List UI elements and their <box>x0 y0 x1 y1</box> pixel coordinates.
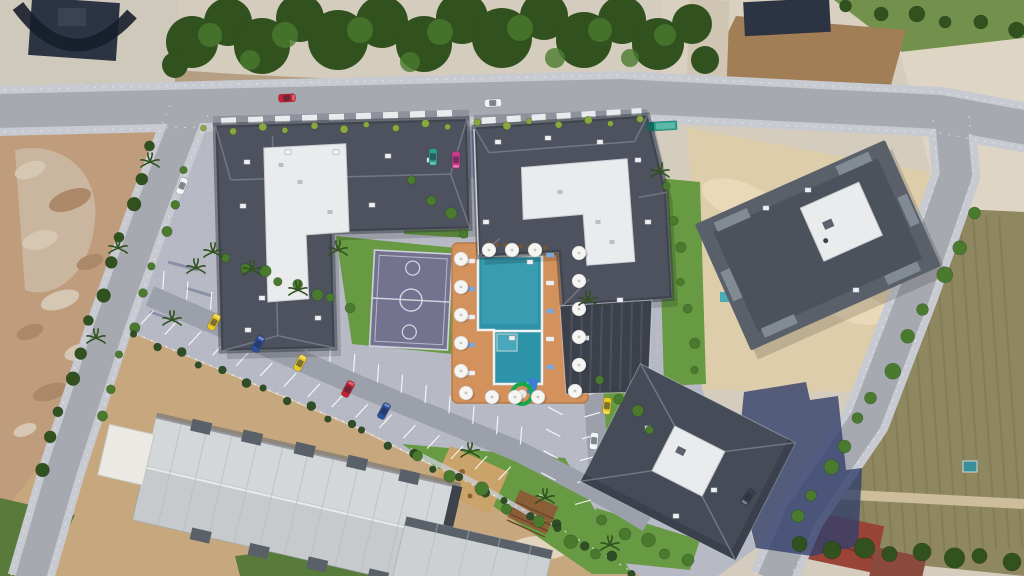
tree <box>501 497 508 504</box>
tree <box>66 372 80 386</box>
tree <box>363 122 369 128</box>
car <box>278 94 295 103</box>
tree <box>953 241 967 255</box>
play-equipment <box>468 494 473 499</box>
tree <box>969 207 981 219</box>
tree <box>348 420 356 428</box>
tree <box>106 385 115 394</box>
tree <box>1009 22 1024 38</box>
rooftop-unit <box>527 260 533 265</box>
tree <box>455 473 463 481</box>
tree <box>677 278 685 286</box>
tree <box>628 570 636 576</box>
tree <box>645 426 654 435</box>
tree <box>501 504 511 514</box>
tree <box>874 7 888 21</box>
rooftop-unit <box>245 328 251 333</box>
tree <box>554 524 562 532</box>
tree <box>422 120 430 128</box>
tree <box>691 366 699 374</box>
tree <box>840 0 852 12</box>
tree <box>345 303 355 313</box>
tree <box>307 401 316 410</box>
tree <box>283 397 291 405</box>
tree <box>36 463 50 477</box>
rooftop-unit <box>483 220 489 225</box>
tree <box>555 121 562 128</box>
tree <box>595 376 604 385</box>
car <box>429 149 437 166</box>
cafe-table <box>543 246 547 250</box>
tree <box>909 6 925 22</box>
tree <box>690 338 700 348</box>
tree <box>180 166 188 174</box>
rooftop-unit <box>259 296 265 301</box>
roof-mark <box>279 163 284 167</box>
tree <box>792 536 807 551</box>
tree <box>115 351 123 359</box>
pool-ripple <box>482 260 538 324</box>
tree <box>614 394 624 404</box>
rooftop-unit <box>597 140 603 145</box>
tree <box>885 363 901 379</box>
tree <box>584 116 592 124</box>
tree <box>663 182 671 190</box>
tree <box>325 416 332 423</box>
tree <box>619 528 631 540</box>
tree <box>340 125 348 133</box>
tree <box>130 331 137 338</box>
tree <box>444 470 456 482</box>
tree <box>972 548 987 563</box>
rooftop-unit <box>673 514 679 519</box>
tree <box>683 304 692 313</box>
tree <box>230 128 237 135</box>
tree <box>154 343 162 351</box>
tree <box>445 208 457 220</box>
tree <box>282 127 288 133</box>
tree <box>503 122 511 130</box>
tree <box>823 541 841 559</box>
tree <box>412 451 422 461</box>
tree <box>474 119 481 126</box>
tree <box>53 407 63 417</box>
tree <box>311 122 318 129</box>
tree <box>901 329 915 343</box>
tree <box>913 543 931 561</box>
tree <box>136 173 148 185</box>
truck <box>647 121 677 132</box>
tree <box>429 466 436 473</box>
rooftop-unit <box>495 140 501 145</box>
tree <box>607 121 613 127</box>
tree <box>392 125 399 132</box>
car <box>589 432 599 450</box>
tree <box>944 548 965 569</box>
roof-mark <box>596 220 601 224</box>
tree <box>937 267 953 283</box>
tree <box>201 125 207 131</box>
cafe-table <box>519 244 523 248</box>
car <box>602 397 612 415</box>
rooftop-unit <box>763 206 769 211</box>
tree <box>195 362 202 369</box>
rooftop-unit <box>240 204 246 209</box>
tree <box>326 293 335 302</box>
car <box>452 152 460 169</box>
basketball-court <box>370 250 453 350</box>
tree <box>596 515 606 525</box>
tree <box>83 315 93 325</box>
tree <box>564 535 578 549</box>
tree <box>682 554 694 566</box>
tree <box>144 141 154 151</box>
tree <box>407 176 416 185</box>
tree <box>676 242 686 252</box>
cafe-table <box>495 243 499 247</box>
rooftop-unit <box>853 288 859 293</box>
rooftop-unit <box>617 298 623 303</box>
tree <box>384 442 392 450</box>
aerial-render: Aerial drone render of a residential apa… <box>0 0 1024 576</box>
scene-svg: Aerial drone render of a residential apa… <box>0 0 1024 576</box>
rooftop-unit <box>509 336 515 341</box>
tree <box>445 124 451 130</box>
tree <box>852 413 863 424</box>
tree <box>580 542 589 551</box>
tree <box>526 118 532 124</box>
shed-teal <box>963 461 977 472</box>
tree <box>218 366 226 374</box>
tree <box>44 431 56 443</box>
tree <box>838 440 851 453</box>
roof-mark <box>610 240 615 244</box>
tree <box>590 549 600 559</box>
tree <box>659 549 669 559</box>
tree <box>312 289 324 301</box>
sun-lounger <box>546 281 554 285</box>
roof-mark <box>328 210 333 214</box>
tree <box>260 385 267 392</box>
tree <box>459 230 468 239</box>
sun-lounger <box>546 309 554 313</box>
tree <box>127 197 141 211</box>
tree <box>139 289 148 298</box>
rooftop-unit <box>645 220 651 225</box>
tree <box>221 254 230 263</box>
tree <box>162 226 172 236</box>
tree <box>607 551 617 561</box>
tree <box>97 411 107 421</box>
rooftop-unit <box>711 488 717 493</box>
rooftop-unit <box>333 150 339 155</box>
tree <box>171 200 180 209</box>
sun-lounger <box>546 337 554 341</box>
tree <box>637 116 644 123</box>
tree <box>669 216 678 225</box>
tree <box>939 16 951 28</box>
tree <box>259 123 267 131</box>
tree <box>974 15 988 29</box>
tree <box>105 256 117 268</box>
tree <box>148 263 156 271</box>
dark-building-ne <box>743 0 831 36</box>
tree <box>274 277 283 286</box>
tree <box>242 378 251 387</box>
tree <box>882 546 897 561</box>
rooftop-unit <box>315 316 321 321</box>
tree <box>1003 553 1021 571</box>
tree <box>824 460 839 475</box>
roof-mark <box>298 180 303 184</box>
roof-mark <box>558 190 563 194</box>
tree <box>533 515 545 527</box>
tree <box>632 405 644 417</box>
tree <box>854 538 875 559</box>
car <box>484 99 501 108</box>
sun-lounger <box>546 253 554 257</box>
sun-lounger <box>546 365 554 369</box>
rooftop-unit <box>635 158 641 163</box>
rooftop-unit <box>805 188 811 193</box>
tree <box>97 289 111 303</box>
tree <box>865 392 877 404</box>
rooftop-unit <box>385 154 391 159</box>
tree <box>792 510 805 523</box>
dark-structure-nw <box>18 0 132 61</box>
tree <box>642 533 656 547</box>
rooftop-unit <box>285 150 291 155</box>
tree <box>75 348 87 360</box>
tree <box>917 304 929 316</box>
tree <box>358 427 365 434</box>
tree <box>475 482 489 496</box>
rooftop-unit <box>369 203 375 208</box>
rooftop-unit <box>244 160 250 165</box>
tree <box>177 347 186 356</box>
tree <box>426 196 436 206</box>
tree <box>806 490 817 501</box>
rooftop-unit <box>545 136 551 141</box>
